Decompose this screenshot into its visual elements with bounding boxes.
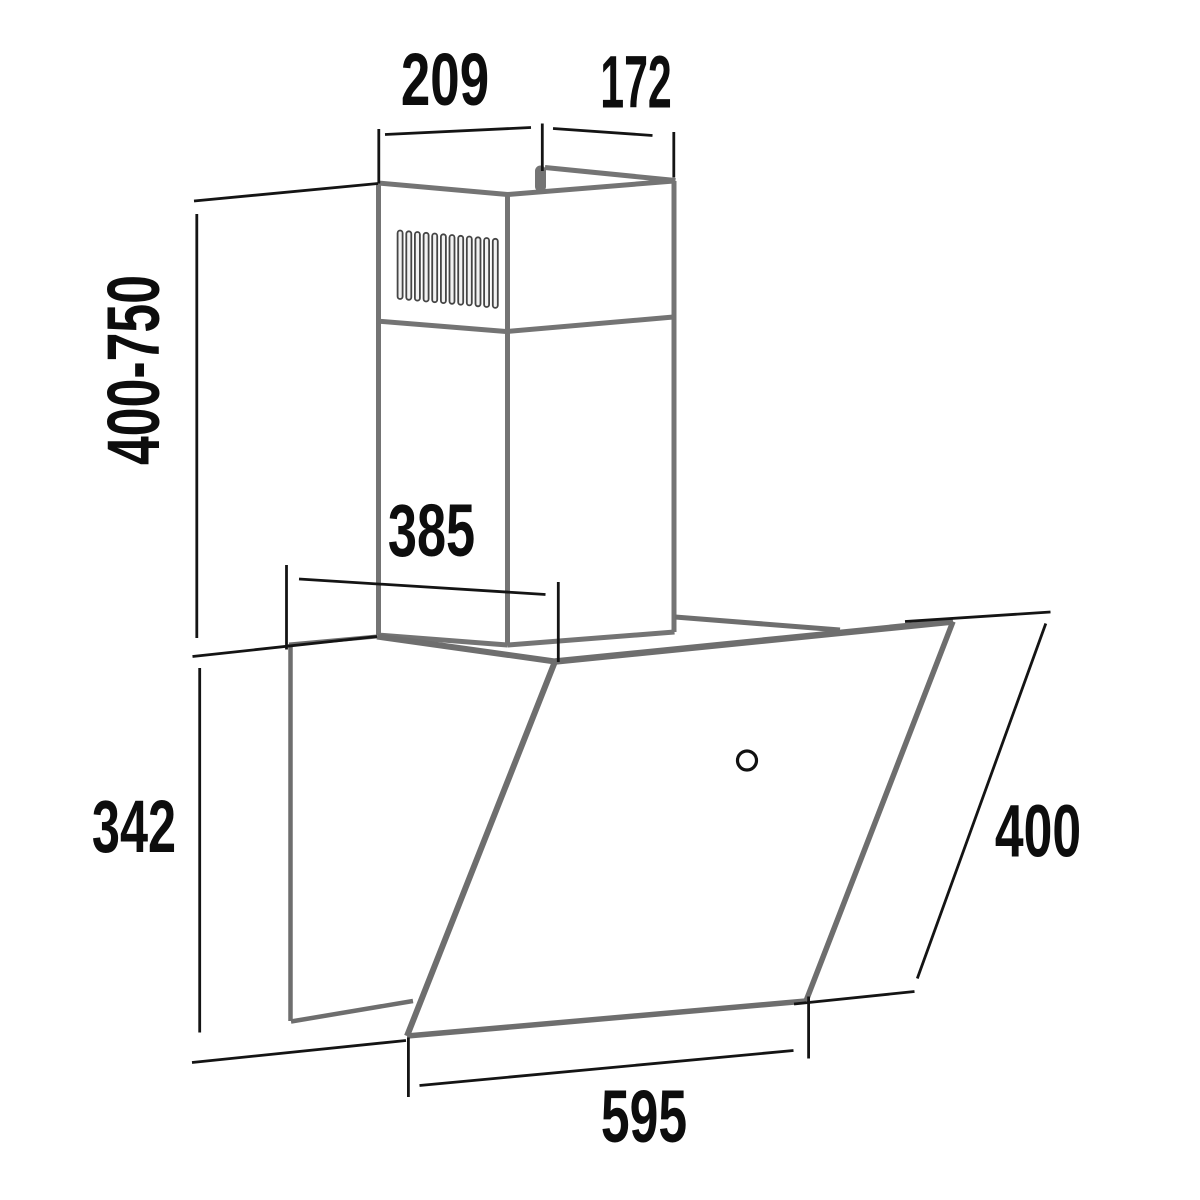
- svg-text:400-750: 400-750: [92, 275, 175, 465]
- svg-text:595: 595: [601, 1075, 687, 1158]
- svg-text:172: 172: [600, 40, 672, 123]
- svg-text:209: 209: [401, 38, 489, 121]
- svg-text:385: 385: [388, 489, 475, 572]
- svg-text:400: 400: [995, 789, 1081, 872]
- svg-text:342: 342: [92, 787, 176, 869]
